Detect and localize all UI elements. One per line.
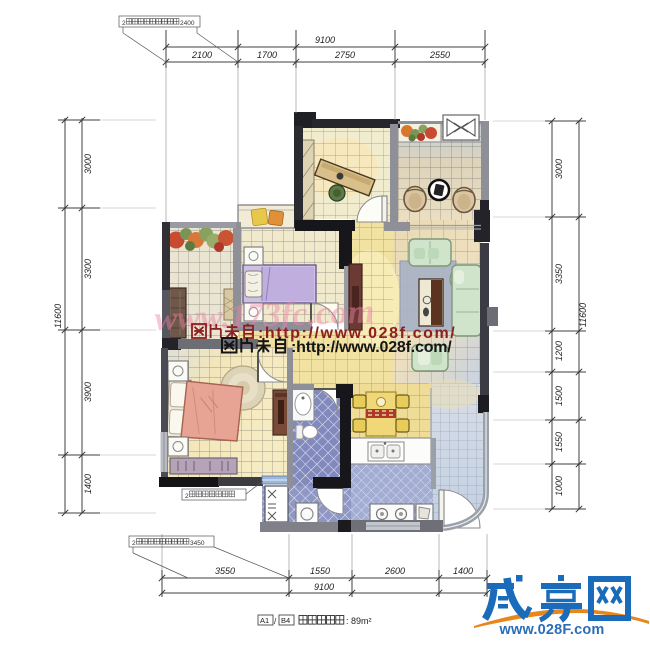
- svg-text:2750: 2750: [334, 50, 355, 60]
- svg-text:: 89m²: : 89m²: [346, 616, 372, 626]
- svg-text:2: 2: [185, 493, 189, 500]
- svg-text:9100: 9100: [314, 582, 334, 592]
- svg-text:11600: 11600: [578, 303, 588, 327]
- svg-text:A1: A1: [260, 616, 269, 625]
- svg-text:B4: B4: [281, 616, 290, 625]
- svg-text:3300: 3300: [83, 259, 93, 279]
- svg-text:1400: 1400: [453, 566, 473, 576]
- svg-text:2100: 2100: [191, 50, 212, 60]
- svg-text:3000: 3000: [554, 159, 564, 179]
- svg-text:2400: 2400: [180, 20, 195, 27]
- svg-text:11600: 11600: [53, 304, 63, 328]
- svg-text:1200: 1200: [554, 341, 564, 361]
- svg-text:2: 2: [132, 540, 136, 547]
- svg-text:1550: 1550: [554, 432, 564, 452]
- svg-text:1700: 1700: [257, 50, 277, 60]
- svg-text:2550: 2550: [429, 50, 450, 60]
- svg-text:3000: 3000: [83, 154, 93, 174]
- svg-text:2: 2: [122, 20, 126, 27]
- svg-text:www.028F.com: www.028F.com: [498, 622, 604, 638]
- svg-text:2600: 2600: [384, 566, 405, 576]
- svg-text:1000: 1000: [554, 476, 564, 496]
- svg-text:9100: 9100: [315, 35, 335, 45]
- svg-text:3350: 3350: [554, 264, 564, 284]
- svg-text:3450: 3450: [190, 540, 205, 547]
- svg-text:3900: 3900: [83, 382, 93, 402]
- svg-text:3550: 3550: [215, 566, 235, 576]
- svg-text::http://www.028f.com/: :http://www.028f.com/: [291, 339, 452, 356]
- svg-text:1400: 1400: [83, 474, 93, 494]
- svg-text:1550: 1550: [310, 566, 330, 576]
- svg-text:1500: 1500: [554, 386, 564, 406]
